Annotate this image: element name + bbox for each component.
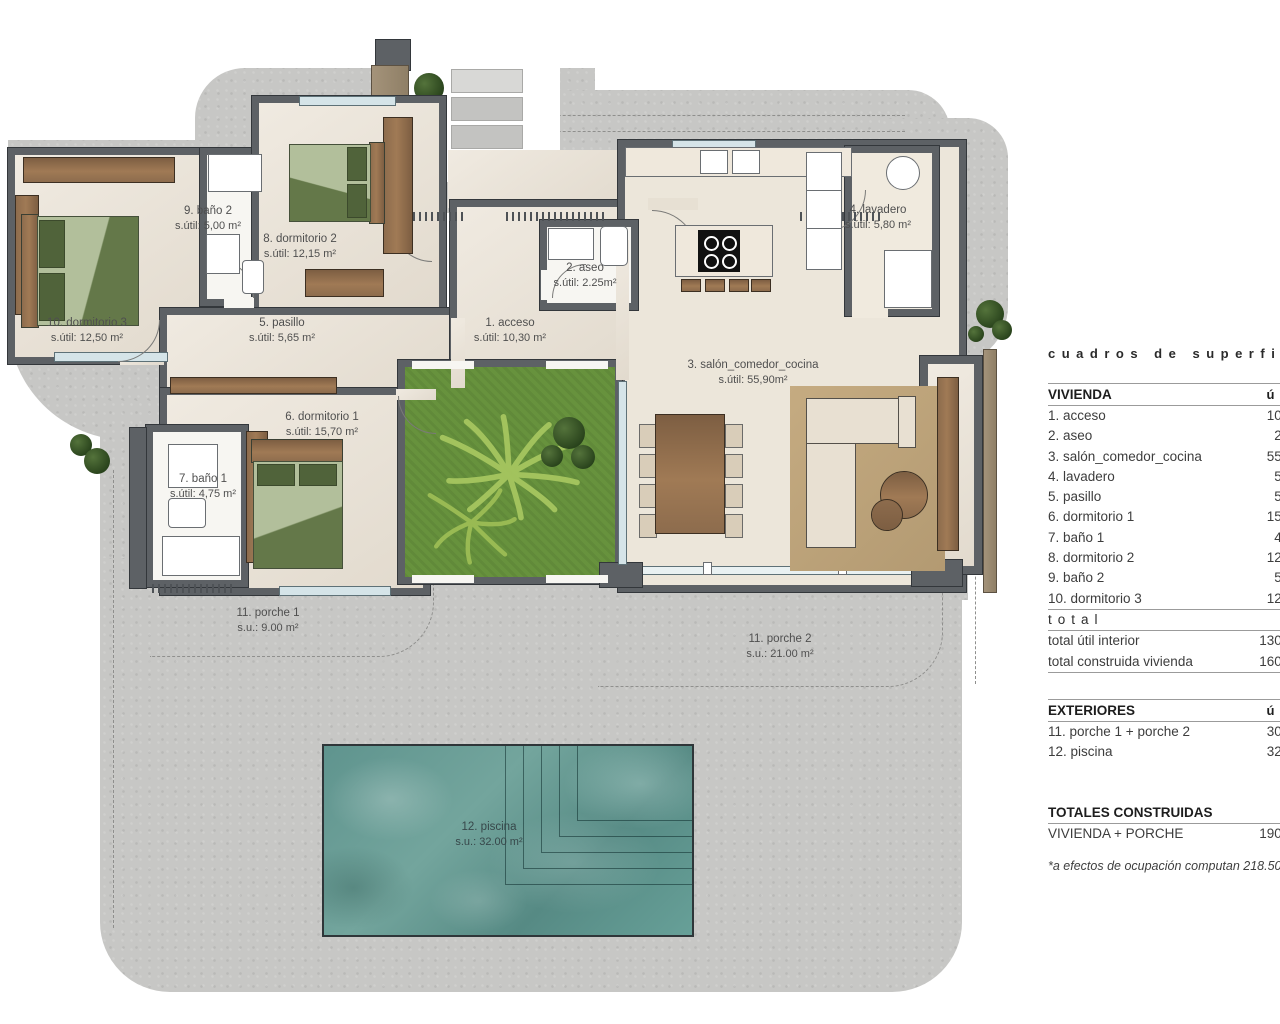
row-value: 160.00 m² bbox=[1259, 652, 1280, 672]
table-row-grand-total: VIVIENDA + PORCHE190.00 m² bbox=[1048, 824, 1280, 844]
row-value: 10,30 m² bbox=[1267, 406, 1280, 426]
row-value: 2,25 m² bbox=[1274, 426, 1280, 446]
kitchen-sink bbox=[732, 150, 760, 174]
dining-chair bbox=[726, 425, 742, 447]
bar-stool bbox=[730, 280, 748, 291]
row-value: 5,65 m² bbox=[1274, 487, 1280, 507]
room-name: 6. dormitorio 1 bbox=[247, 410, 397, 425]
bathroom-sink bbox=[548, 228, 594, 260]
sofa-armrest bbox=[898, 396, 916, 448]
dining-chair bbox=[726, 455, 742, 477]
occupancy-note: *a efectos de ocupación computan 218.50 … bbox=[1048, 859, 1280, 873]
row-label: 7. baño 1 bbox=[1048, 528, 1104, 548]
washing-machine bbox=[886, 156, 920, 190]
table-row: 7. baño 14,75 m² bbox=[1048, 528, 1280, 548]
room-label-dormitorio-3: 10. dormitorio 3 s.útil: 12,50 m² bbox=[12, 316, 162, 346]
paving-slab bbox=[452, 126, 522, 148]
bar-stool bbox=[752, 280, 770, 291]
room-label-dormitorio-2: 8. dormitorio 2 s.útil: 12,15 m² bbox=[225, 232, 375, 262]
area-size: s.u.: 9.00 m² bbox=[193, 621, 343, 636]
row-value: 190.00 m² bbox=[1259, 824, 1280, 844]
room-area: s.útil: 10,30 m² bbox=[435, 331, 585, 346]
row-label: 4. lavadero bbox=[1048, 467, 1115, 487]
area-label-piscina: 12. piscina s.u.: 32.00 m² bbox=[414, 820, 564, 850]
table-section-totales-construidas: TOTALES CONSTRUIDAS bbox=[1048, 802, 1280, 824]
table-title: cuadros de superficie bbox=[1048, 346, 1280, 369]
door-gap-bano-2 bbox=[224, 297, 254, 308]
toilet bbox=[242, 260, 264, 294]
row-value: 32.00 m² bbox=[1267, 742, 1280, 762]
hall-wardrobe bbox=[171, 378, 336, 393]
row-value: 55,90 m² bbox=[1267, 447, 1280, 467]
bed-headboard bbox=[370, 143, 384, 223]
row-value: 4,75 m² bbox=[1274, 528, 1280, 548]
row-value: 30.00 m² bbox=[1267, 722, 1280, 742]
table-row-total: total útil interior130.00 m² bbox=[1048, 631, 1280, 651]
sofa bbox=[806, 398, 902, 444]
room-area: s.útil: 5,00 m² bbox=[133, 219, 283, 234]
shower bbox=[208, 154, 262, 192]
table-section-exteriores: EXTERIORES útil bbox=[1048, 699, 1280, 722]
unit-column-header: útil bbox=[1267, 387, 1280, 402]
window-dormitorio-1 bbox=[280, 587, 390, 595]
bed-pillow bbox=[40, 221, 64, 267]
row-label: 8. dormitorio 2 bbox=[1048, 548, 1134, 568]
row-label: 11. porche 1 + porche 2 bbox=[1048, 722, 1190, 742]
plot-dashed-line-left bbox=[113, 470, 114, 928]
burner bbox=[704, 236, 719, 251]
sliding-door-mullion bbox=[703, 562, 712, 575]
table-row: 3. salón_comedor_cocina55,90 m² bbox=[1048, 447, 1280, 467]
tall-unit-shelf-line bbox=[806, 190, 842, 191]
dining-chair bbox=[640, 455, 656, 477]
wardrobe bbox=[24, 158, 174, 182]
coffee-table bbox=[872, 500, 902, 530]
cooktop bbox=[698, 230, 740, 272]
row-label: 3. salón_comedor_cocina bbox=[1048, 447, 1202, 467]
room-label-bano-2: 9. baño 2 s.útil: 5,00 m² bbox=[133, 204, 283, 234]
room-name: 2. aseo bbox=[510, 261, 660, 276]
paving-slab bbox=[452, 70, 522, 92]
opening-courtyard-bottom bbox=[546, 575, 608, 583]
perimeter-fence-band bbox=[984, 350, 996, 592]
room-label-pasillo: 5. pasillo s.útil: 5,65 m² bbox=[207, 316, 357, 346]
bush-icon bbox=[968, 326, 984, 342]
area-label-porche-1: 11. porche 1 s.u.: 9.00 m² bbox=[193, 606, 343, 636]
window-dormitorio-2 bbox=[300, 97, 395, 105]
area-name: 12. piscina bbox=[414, 820, 564, 835]
dining-chair bbox=[640, 515, 656, 537]
table-row: 2. aseo2,25 m² bbox=[1048, 426, 1280, 446]
room-area: s.útil: 2.25m² bbox=[510, 276, 660, 291]
bush-icon bbox=[992, 320, 1012, 340]
table-section-vivienda: VIVIENDA útil bbox=[1048, 383, 1280, 406]
section-header: EXTERIORES bbox=[1048, 703, 1135, 718]
table-row: 6. dormitorio 115,70 m² bbox=[1048, 507, 1280, 527]
door-gap-lavadero bbox=[852, 304, 888, 318]
bed-headboard bbox=[22, 215, 38, 327]
wardrobe bbox=[384, 118, 412, 253]
area-size: s.u.: 21.00 m² bbox=[705, 647, 855, 662]
toilet bbox=[168, 498, 206, 528]
porch-edge-marker bbox=[506, 212, 604, 221]
dining-chair bbox=[640, 485, 656, 507]
table-row: 1. acceso10,30 m² bbox=[1048, 406, 1280, 426]
row-label: 10. dormitorio 3 bbox=[1048, 589, 1142, 609]
floorplan-page: { "plan": { "labels": [ {"name": "1. acc… bbox=[0, 0, 1280, 1024]
dining-chair bbox=[726, 485, 742, 507]
room-label-bano-1: 7. baño 1 s.útil: 4,75 m² bbox=[128, 472, 278, 502]
row-label: 1. acceso bbox=[1048, 406, 1106, 426]
room-area: s.útil: 5,80 m² bbox=[803, 218, 953, 233]
room-area: s.útil: 12,50 m² bbox=[12, 331, 162, 346]
dining-chair bbox=[726, 515, 742, 537]
dresser bbox=[306, 270, 383, 296]
bed-pillow bbox=[300, 465, 336, 485]
bed-headboard bbox=[252, 440, 342, 462]
surface-table: cuadros de superficie VIVIENDA útil 1. a… bbox=[1048, 346, 1280, 873]
bush-icon bbox=[541, 445, 563, 467]
burner bbox=[722, 254, 737, 269]
area-name: 11. porche 2 bbox=[705, 632, 855, 647]
bush-icon bbox=[571, 445, 595, 469]
room-area: s.útil: 5,65 m² bbox=[207, 331, 357, 346]
pool-step-line bbox=[577, 746, 692, 821]
burner bbox=[722, 236, 737, 251]
total-divider-label: total bbox=[1048, 610, 1280, 630]
glazing-courtyard-salon bbox=[619, 382, 626, 564]
room-name: 3. salón_comedor_cocina bbox=[653, 358, 853, 373]
opening-courtyard-top bbox=[412, 361, 474, 369]
room-area: s.útil: 55,90m² bbox=[653, 373, 853, 388]
porch-edge-marker bbox=[413, 212, 465, 221]
table-row: 8. dormitorio 212,15 m² bbox=[1048, 548, 1280, 568]
area-label-porche-2: 11. porche 2 s.u.: 21.00 m² bbox=[705, 632, 855, 662]
bed-pillow bbox=[348, 185, 366, 217]
bar-stool bbox=[706, 280, 724, 291]
row-label: total construida vivienda bbox=[1048, 652, 1193, 672]
room-name: 10. dormitorio 3 bbox=[12, 316, 162, 331]
opening-courtyard-bottom bbox=[412, 575, 474, 583]
room-name: 9. baño 2 bbox=[133, 204, 283, 219]
room-label-aseo: 2. aseo s.útil: 2.25m² bbox=[510, 261, 660, 291]
row-label: 9. baño 2 bbox=[1048, 568, 1104, 588]
row-label: 6. dormitorio 1 bbox=[1048, 507, 1134, 527]
row-label: VIVIENDA + PORCHE bbox=[1048, 824, 1183, 844]
room-area: s.útil: 12,15 m² bbox=[225, 247, 375, 262]
toilet bbox=[600, 226, 628, 266]
room-name: 8. dormitorio 2 bbox=[225, 232, 375, 247]
burner bbox=[704, 254, 719, 269]
row-label: 5. pasillo bbox=[1048, 487, 1101, 507]
row-value: 130.00 m² bbox=[1259, 631, 1280, 651]
room-name: 5. pasillo bbox=[207, 316, 357, 331]
row-label: 12. piscina bbox=[1048, 742, 1113, 762]
room-label-acceso: 1. acceso s.útil: 10,30 m² bbox=[435, 316, 585, 346]
row-value: 12,50 m² bbox=[1267, 589, 1280, 609]
bush-icon bbox=[84, 448, 110, 474]
room-area: s.útil: 4,75 m² bbox=[128, 487, 278, 502]
row-value: 5,00 m² bbox=[1274, 568, 1280, 588]
row-value: 5,80 m² bbox=[1274, 467, 1280, 487]
kitchen-sink bbox=[700, 150, 728, 174]
room-label-dormitorio-1: 6. dormitorio 1 s.útil: 15,70 m² bbox=[247, 410, 397, 440]
row-label: 2. aseo bbox=[1048, 426, 1092, 446]
room-name: 1. acceso bbox=[435, 316, 585, 331]
paving-slab bbox=[452, 98, 522, 120]
dining-table bbox=[656, 415, 724, 533]
room-name: 4. lavadero bbox=[803, 203, 953, 218]
section-header: TOTALES CONSTRUIDAS bbox=[1048, 805, 1213, 820]
laundry-counter bbox=[884, 250, 932, 308]
table-row: 9. baño 25,00 m² bbox=[1048, 568, 1280, 588]
porch-pillar bbox=[130, 428, 146, 588]
table-row-total: total construida vivienda160.00 m² bbox=[1048, 652, 1280, 672]
opening-courtyard-top bbox=[546, 361, 608, 369]
shower bbox=[162, 536, 240, 576]
bed-pillow bbox=[348, 148, 366, 180]
bar-stool bbox=[682, 280, 700, 291]
table-row: 12. piscina32.00 m² bbox=[1048, 742, 1280, 762]
porch-edge-marker bbox=[152, 584, 236, 593]
door-gap-acceso bbox=[648, 198, 698, 210]
table-row: 4. lavadero5,80 m² bbox=[1048, 467, 1280, 487]
bed-pillow bbox=[40, 274, 64, 320]
row-label: total útil interior bbox=[1048, 631, 1140, 651]
window-dormitorio-3 bbox=[55, 353, 167, 361]
room-name: 7. baño 1 bbox=[128, 472, 278, 487]
table-row: 11. porche 1 + porche 230.00 m² bbox=[1048, 722, 1280, 742]
area-size: s.u.: 32.00 m² bbox=[414, 835, 564, 850]
tv-console bbox=[938, 378, 958, 550]
section-header: VIVIENDA bbox=[1048, 387, 1112, 402]
unit-column-header: útil bbox=[1267, 703, 1280, 718]
table-row: 5. pasillo5,65 m² bbox=[1048, 487, 1280, 507]
room-label-lavadero: 4. lavadero s.útil: 5,80 m² bbox=[803, 203, 953, 233]
row-value: 15,70 m² bbox=[1267, 507, 1280, 527]
room-label-salon: 3. salón_comedor_cocina s.útil: 55,90m² bbox=[653, 358, 853, 388]
dining-chair bbox=[640, 425, 656, 447]
room-area: s.útil: 15,70 m² bbox=[247, 425, 397, 440]
table-row: 10. dormitorio 312,50 m² bbox=[1048, 589, 1280, 609]
area-name: 11. porche 1 bbox=[193, 606, 343, 621]
row-value: 12,15 m² bbox=[1267, 548, 1280, 568]
